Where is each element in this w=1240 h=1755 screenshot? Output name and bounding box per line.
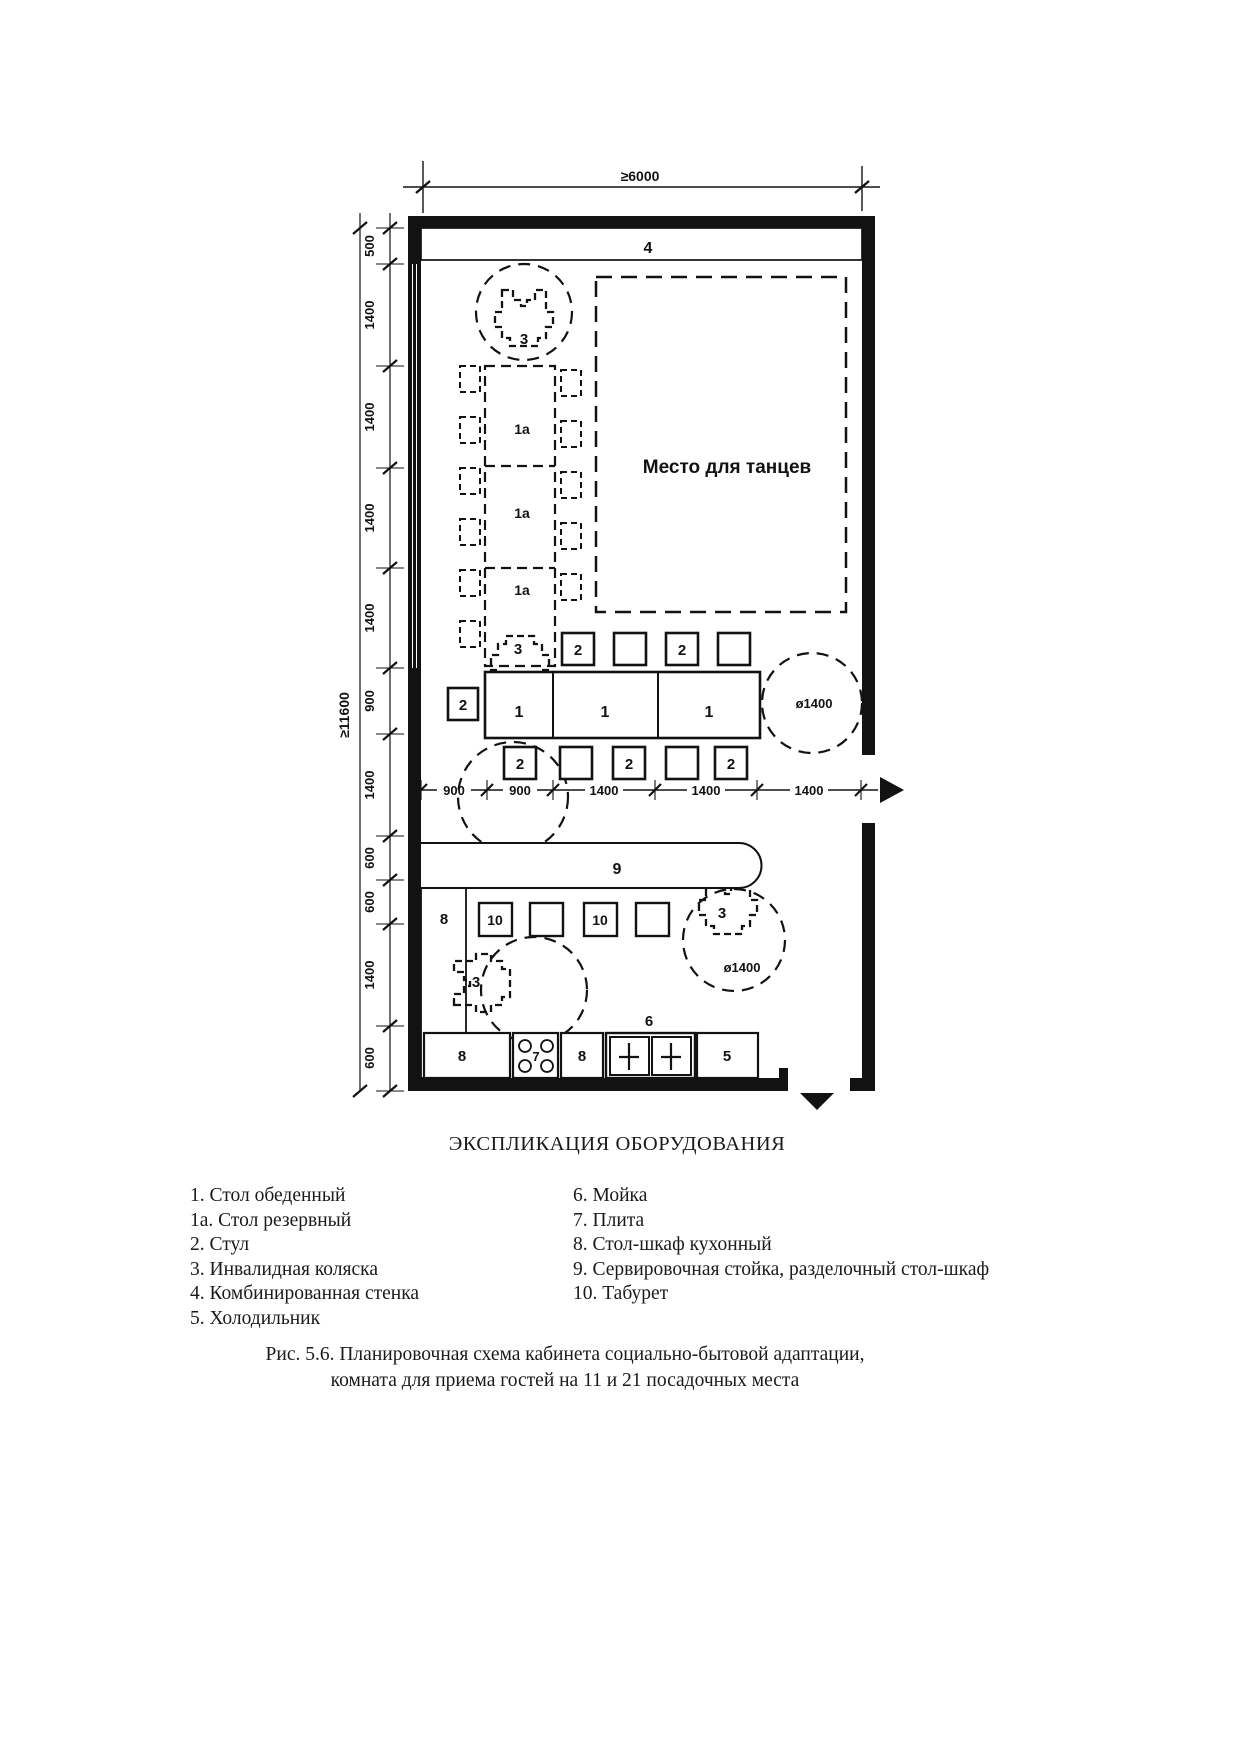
- entry-arrow-right-icon: [880, 777, 904, 803]
- chair-label: 2: [727, 756, 735, 773]
- chair-label: 2: [574, 642, 582, 659]
- table-label-3: 1: [705, 704, 714, 721]
- legend-item: 1. Стол обеденный: [190, 1184, 419, 1209]
- dim-left-4: 1400: [362, 604, 377, 633]
- legend-item: 8. Стол-шкаф кухонный: [573, 1233, 989, 1258]
- caption-line-1: Рис. 5.6. Планировочная схема кабинета с…: [266, 1342, 865, 1368]
- chair-label: 2: [625, 756, 633, 773]
- dim-left-5: 900: [362, 690, 377, 712]
- legend-item: 7. Плита: [573, 1209, 989, 1234]
- dim-left-2: 1400: [362, 403, 377, 432]
- fridge-label: 5: [723, 1048, 731, 1065]
- sink-unit: [606, 1033, 695, 1078]
- chair-label: 2: [516, 756, 524, 773]
- table-label-1: 1: [515, 704, 524, 721]
- wheelchair-label-right: 3: [718, 905, 726, 922]
- sink-label: 6: [645, 1013, 653, 1030]
- wheelchair-icon-bottom-left: [454, 954, 510, 1012]
- floor-plan-svg: ≥6000 ≥11600 500 1400 1400 1400 1400 900…: [335, 140, 915, 1115]
- stools: [479, 903, 669, 936]
- dim-bottom-0: 900: [443, 783, 465, 798]
- figure-caption: Рис. 5.6. Планировочная схема кабинета с…: [266, 1342, 865, 1393]
- turning-circle-right-label: ø1400: [796, 696, 833, 711]
- entry-arrow-down-icon: [800, 1093, 834, 1110]
- wheelchair-label-table: 3: [514, 641, 522, 658]
- dim-total-height: ≥11600: [336, 692, 352, 738]
- floor-plan: ≥6000 ≥11600 500 1400 1400 1400 1400 900…: [335, 140, 915, 1115]
- dim-bottom-2: 1400: [590, 783, 619, 798]
- legend-item: 10. Табурет: [573, 1282, 989, 1307]
- wheelchair-label-bottom-left: 3: [472, 974, 480, 991]
- legend-right-column: 6. Мойка 7. Плита 8. Стол-шкаф кухонный …: [573, 1184, 989, 1307]
- wall-unit-4: [421, 228, 862, 260]
- wall-right-upper: [862, 228, 875, 755]
- reserve-tables: 1а 1а 1а: [485, 366, 555, 666]
- stove-label: 7: [532, 1049, 539, 1064]
- wall-right-lower: [862, 823, 875, 1078]
- legend-item: 6. Мойка: [573, 1184, 989, 1209]
- reserve-table-label-3: 1а: [514, 582, 530, 598]
- dance-area-label: Место для танцев: [643, 457, 811, 478]
- wall-unit-4-label: 4: [644, 240, 653, 257]
- chair-label: 2: [459, 697, 467, 714]
- wall-right-foot: [850, 1078, 875, 1091]
- dim-left-9: 1400: [362, 961, 377, 990]
- kitchen-cabinet-mid-label: 8: [578, 1048, 586, 1065]
- legend-title: ЭКСПЛИКАЦИЯ ОБОРУДОВАНИЯ: [449, 1133, 786, 1156]
- legend-item: 1а. Стол резервный: [190, 1209, 419, 1234]
- legend-item: 3. Инвалидная коляска: [190, 1258, 419, 1283]
- dim-bottom-3: 1400: [692, 783, 721, 798]
- kitchen-cabinet-left-label: 8: [458, 1048, 466, 1065]
- kitchen-row: 8 7 8 6 5: [424, 1013, 758, 1078]
- legend-left-column: 1. Стол обеденный 1а. Стол резервный 2. …: [190, 1184, 419, 1332]
- dim-left-6: 1400: [362, 771, 377, 800]
- dim-total-width: ≥6000: [621, 168, 660, 184]
- dim-left-3: 1400: [362, 504, 377, 533]
- document-page: ≥6000 ≥11600 500 1400 1400 1400 1400 900…: [0, 0, 1240, 1755]
- serving-counter-label: 9: [613, 861, 622, 878]
- dim-bottom-4: 1400: [795, 783, 824, 798]
- chair-label: 2: [678, 642, 686, 659]
- dance-area: [596, 277, 846, 612]
- dim-left-8: 600: [362, 891, 377, 913]
- caption-line-2: комната для приема гостей на 11 и 21 пос…: [266, 1368, 865, 1394]
- wall-bottom: [408, 1078, 788, 1091]
- turning-circle-lower-right-label: ø1400: [724, 960, 761, 975]
- cabinet-strip-label: 8: [440, 911, 448, 928]
- stool-label: 10: [487, 912, 503, 928]
- dining-tables: 1 1 1: [485, 672, 760, 738]
- dim-left-10: 600: [362, 1047, 377, 1069]
- wall-bottom-endcap: [779, 1068, 788, 1091]
- reserve-table-label-1: 1а: [514, 421, 530, 437]
- dimension-lines: [353, 161, 880, 1097]
- dim-left-1: 1400: [362, 301, 377, 330]
- wall-top: [408, 216, 875, 228]
- legend-item: 4. Комбинированная стенка: [190, 1282, 419, 1307]
- dim-left-7: 600: [362, 847, 377, 869]
- dim-left-0: 500: [362, 235, 377, 257]
- turning-circle-lower-left: [481, 937, 587, 1043]
- serving-counter: [421, 843, 762, 888]
- stool-label: 10: [592, 912, 608, 928]
- legend-item: 2. Стул: [190, 1233, 419, 1258]
- legend-item: 5. Холодильник: [190, 1307, 419, 1332]
- reserve-table-label-2: 1а: [514, 505, 530, 521]
- dim-bottom-1: 900: [509, 783, 531, 798]
- legend-item: 9. Сервировочная стойка, разделочный сто…: [573, 1258, 989, 1283]
- wheelchair-label-top: 3: [520, 331, 528, 348]
- kitchen-cabinet-left: [424, 1033, 510, 1078]
- table-label-2: 1: [601, 704, 610, 721]
- wall-left: [408, 216, 421, 1091]
